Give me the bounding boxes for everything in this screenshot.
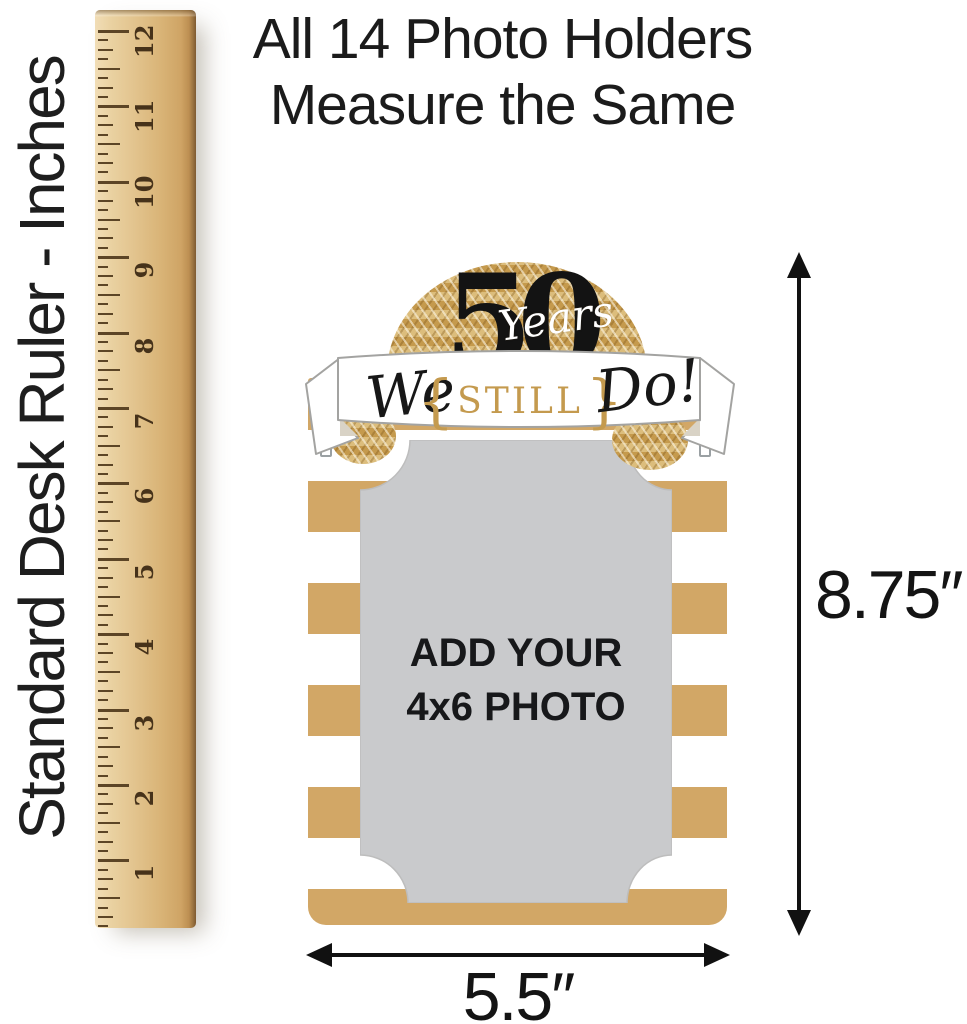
- ruler-tick: [98, 643, 108, 645]
- ruler-inch-number: 11: [131, 105, 159, 133]
- ruler-tick: [98, 530, 108, 532]
- ruler-inch-number: 3: [131, 709, 159, 737]
- banner-word-still: { STILL }: [444, 376, 596, 426]
- ruler-tick: [98, 633, 129, 636]
- ruler-tick: [98, 652, 113, 654]
- ruler-tick: [98, 812, 108, 814]
- ruler-tick: [98, 398, 108, 400]
- ruler-tick: [98, 445, 120, 447]
- ruler-tick: [98, 548, 108, 550]
- ruler-scale: 121110987654321: [95, 10, 196, 928]
- ruler-tick: [98, 690, 113, 692]
- ruler-tick: [98, 680, 108, 682]
- ruler-tick: [98, 454, 108, 456]
- ruler-tick: [98, 511, 108, 513]
- ruler-tick: [98, 624, 108, 626]
- headline: All 14 Photo Holders Measure the Same: [230, 6, 775, 138]
- ruler-tick: [98, 200, 113, 202]
- ruler-tick: [98, 30, 129, 33]
- ruler-tick: [98, 360, 108, 362]
- banner-open-brace: {: [417, 376, 454, 426]
- height-arrow-line: [797, 260, 801, 928]
- banner-word-do: Do!: [592, 346, 704, 426]
- ruler-tick: [98, 237, 113, 239]
- ruler-tick: [98, 520, 120, 522]
- ruler-tick: [98, 219, 120, 221]
- photo-placeholder-line-2: 4x6 PHOTO: [360, 680, 672, 734]
- ruler-inch-number: 4: [131, 633, 159, 661]
- ruler-tick: [98, 105, 129, 108]
- ruler-tick: [98, 869, 108, 871]
- ruler-tick: [98, 171, 108, 173]
- product-dimension-graphic: Standard Desk Ruler - Inches 12111098765…: [0, 0, 967, 1024]
- ruler-inch-number: 9: [131, 256, 159, 284]
- ruler-tick: [98, 49, 113, 51]
- ruler-side-label: Standard Desk Ruler - Inches: [5, 56, 79, 840]
- ruler-tick: [98, 473, 108, 475]
- ruler-tick: [98, 482, 129, 485]
- ruler-tick: [98, 407, 129, 410]
- ruler-tick: [98, 143, 120, 145]
- ruler-tick: [98, 916, 113, 918]
- ruler-tick: [98, 124, 113, 126]
- ruler-inch-number: 7: [131, 407, 159, 435]
- ruler-tick: [98, 709, 129, 712]
- height-dimension-label: 8.75″: [815, 556, 961, 634]
- ruler-tick: [98, 897, 120, 899]
- headline-line-2: Measure the Same: [230, 72, 775, 138]
- width-arrow-line: [314, 953, 722, 957]
- ruler-tick: [98, 388, 113, 390]
- ruler-tick: [98, 878, 113, 880]
- ruler-tick: [98, 596, 120, 598]
- ruler-tick: [98, 350, 113, 352]
- ruler-tick: [98, 322, 108, 324]
- ruler-tick: [98, 464, 113, 466]
- ruler-tick: [98, 539, 113, 541]
- ruler-inch-number: 2: [131, 784, 159, 812]
- ruler-tick: [98, 284, 108, 286]
- ruler-tick: [98, 614, 113, 616]
- ruler-tick: [98, 558, 129, 561]
- ruler-tick: [98, 765, 113, 767]
- width-dimension-label: 5.5″: [360, 958, 676, 1024]
- photo-placeholder-text: ADD YOUR 4x6 PHOTO: [360, 626, 672, 734]
- ruler-tick: [98, 567, 108, 569]
- ruler-tick: [98, 737, 108, 739]
- ruler-tick: [98, 162, 113, 164]
- ruler-tick: [98, 435, 108, 437]
- ruler-tick: [98, 247, 108, 249]
- ruler-tick: [98, 850, 108, 852]
- ruler-inch-number: 12: [131, 30, 159, 58]
- ruler-tick: [98, 586, 108, 588]
- ruler-tick: [98, 341, 108, 343]
- photo-placeholder-line-1: ADD YOUR: [360, 626, 672, 680]
- ruler-inch-number: 8: [131, 332, 159, 360]
- ruler-tick: [98, 822, 120, 824]
- ruler-tick: [98, 153, 108, 155]
- ruler-tick: [98, 256, 129, 259]
- ruler-inch-number: 1: [131, 859, 159, 887]
- width-arrow-left-icon: [306, 943, 332, 967]
- headline-line-1: All 14 Photo Holders: [230, 6, 775, 72]
- ruler-tick: [98, 501, 113, 503]
- ruler-tick: [98, 134, 108, 136]
- ruler-tick: [98, 671, 120, 673]
- ruler-tick: [98, 228, 108, 230]
- height-arrow-up-icon: [787, 252, 811, 278]
- ruler-tick: [98, 746, 120, 748]
- desk-ruler: 121110987654321: [95, 10, 196, 928]
- ruler-tick: [98, 784, 129, 787]
- ruler-tick: [98, 841, 113, 843]
- ruler-tick: [98, 96, 108, 98]
- ruler-tick: [98, 605, 108, 607]
- ruler-tick: [98, 39, 108, 41]
- ruler-tick: [98, 577, 113, 579]
- ruler-tick: [98, 77, 108, 79]
- ruler-tick: [98, 275, 113, 277]
- ruler-tick: [98, 58, 108, 60]
- ruler-tick: [98, 888, 108, 890]
- ruler-tick: [98, 925, 108, 927]
- ruler-tick: [98, 756, 108, 758]
- ruler-tick: [98, 181, 129, 184]
- ruler-tick: [98, 907, 108, 909]
- ruler-tick: [98, 87, 113, 89]
- ruler-inch-number: 5: [131, 558, 159, 586]
- ruler-tick: [98, 803, 113, 805]
- ruler-tick: [98, 426, 113, 428]
- ruler-tick: [98, 859, 129, 862]
- ruler-tick: [98, 266, 108, 268]
- banner-still-caps: STILL: [457, 381, 583, 422]
- ruler-tick: [98, 831, 108, 833]
- ruler-tick: [98, 793, 108, 795]
- ruler-tick: [98, 369, 120, 371]
- ruler-tick: [98, 492, 108, 494]
- ruler-tick: [98, 303, 108, 305]
- width-arrow-right-icon: [704, 943, 730, 967]
- ruler-inch-number: 6: [131, 482, 159, 510]
- ruler-tick: [98, 727, 113, 729]
- ruler-tick: [98, 209, 108, 211]
- ruler-tick: [98, 115, 108, 117]
- ruler-inch-number: 10: [131, 181, 159, 209]
- height-arrow-down-icon: [787, 910, 811, 936]
- ruler-tick: [98, 190, 108, 192]
- ruler-tick: [98, 661, 108, 663]
- ruler-tick: [98, 718, 108, 720]
- ruler-tick: [98, 699, 108, 701]
- ruler-tick: [98, 294, 120, 296]
- ruler-tick: [98, 332, 129, 335]
- ruler-tick: [98, 68, 120, 70]
- ruler-tick: [98, 379, 108, 381]
- ruler-tick: [98, 775, 108, 777]
- ruler-tick: [98, 313, 113, 315]
- ruler-tick: [98, 416, 108, 418]
